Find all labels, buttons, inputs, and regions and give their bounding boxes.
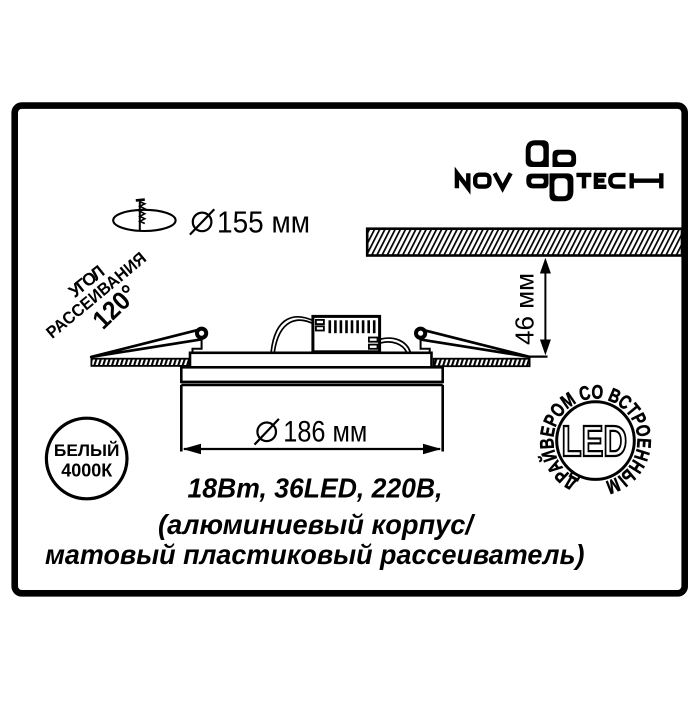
svg-text:матовый пластиковый рассеивате: матовый пластиковый рассеиватель)	[45, 539, 585, 570]
svg-text:LED: LED	[561, 418, 627, 467]
svg-text:46 мм: 46 мм	[510, 273, 540, 345]
svg-text:4000К: 4000К	[61, 460, 113, 480]
svg-text:(алюминиевый корпус/: (алюминиевый корпус/	[158, 509, 476, 540]
svg-text:186 мм: 186 мм	[283, 415, 367, 448]
svg-text:155 мм: 155 мм	[217, 206, 310, 240]
svg-text:18Вт, 36LED, 220В,: 18Вт, 36LED, 220В,	[188, 472, 443, 503]
svg-text:БЕЛЫЙ: БЕЛЫЙ	[54, 441, 120, 460]
